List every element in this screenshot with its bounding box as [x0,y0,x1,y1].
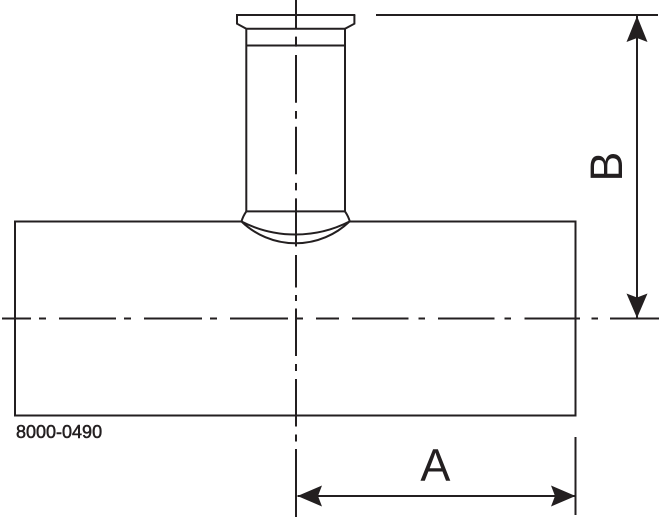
svg-text:A: A [420,440,450,491]
svg-text:B: B [581,152,632,182]
svg-text:8000-0490: 8000-0490 [16,422,102,442]
